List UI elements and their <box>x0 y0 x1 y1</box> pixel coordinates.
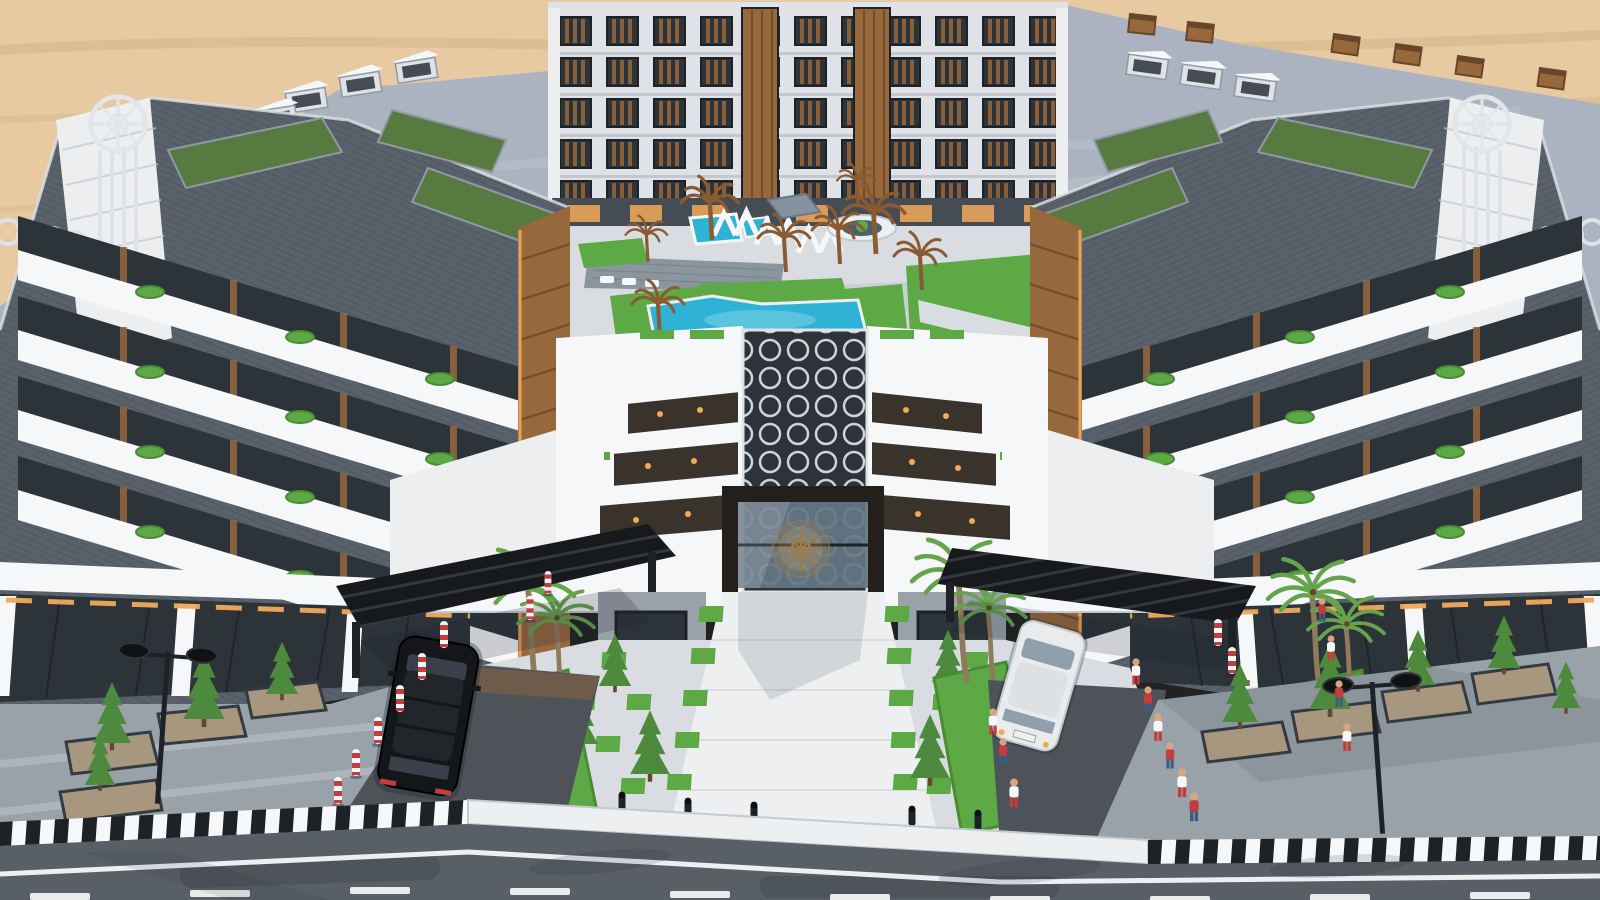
rear-building <box>548 2 1068 228</box>
render-canvas <box>0 0 1600 900</box>
gate-emblem <box>773 521 829 577</box>
architectural-render-image <box>0 0 1600 900</box>
left-wing-building <box>0 97 570 706</box>
entrance-gate <box>722 486 884 592</box>
